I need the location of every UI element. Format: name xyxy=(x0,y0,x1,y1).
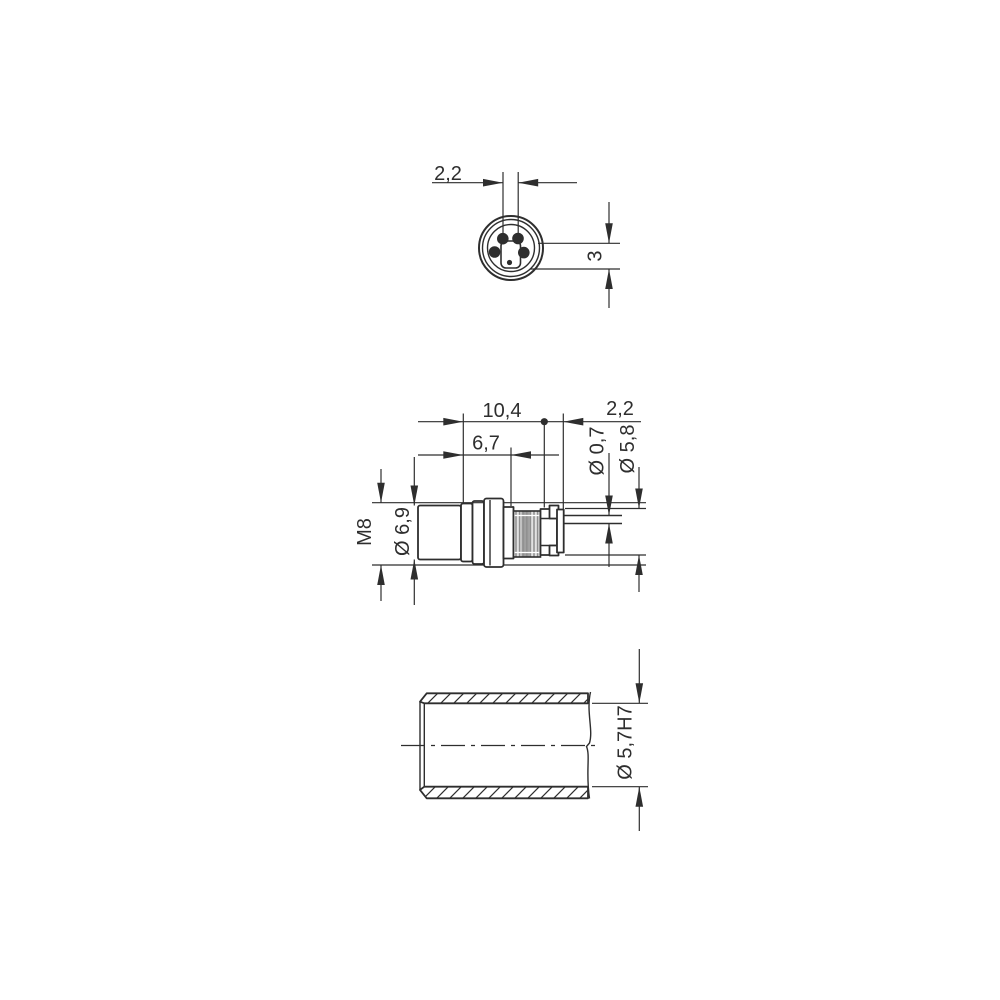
knurl-section xyxy=(514,511,541,557)
castellated-tip xyxy=(541,506,564,556)
contact-pin-1 xyxy=(497,233,509,245)
dim-key-offset: 3 xyxy=(530,202,620,308)
side-view: 10,4 2,2 6,7 M8 Ø 6,9 xyxy=(354,398,646,605)
arrow-down xyxy=(377,483,385,503)
dim-label-tip-diameter: Ø 5,8 xyxy=(617,425,639,474)
dim-thread-size: M8 xyxy=(354,469,385,601)
dim-label-key-offset: 3 xyxy=(585,250,607,261)
arrow-left xyxy=(511,451,531,459)
wall-hatch-bottom xyxy=(420,787,588,799)
dim-pin-spacing: 2,2 xyxy=(432,163,577,187)
drawing-canvas: 2,2 3 xyxy=(0,0,1000,1000)
dim-body-length: 6,7 xyxy=(418,433,559,459)
collar-ring-1 xyxy=(461,504,473,562)
dim-label-body-diameter: Ø 6,9 xyxy=(392,507,414,556)
arrow-up xyxy=(636,787,644,807)
arrow-right xyxy=(483,179,503,187)
dim-label-bore-diameter: Ø 5,7H7 xyxy=(615,705,637,779)
arrow-down xyxy=(636,683,644,703)
arrow-right xyxy=(443,418,463,426)
step-ring xyxy=(504,507,514,559)
tip-face xyxy=(557,510,564,553)
arrow-up xyxy=(411,560,419,580)
arrow-down xyxy=(605,496,613,516)
contact-pin-3 xyxy=(489,246,501,258)
arrow-down xyxy=(635,489,643,509)
dim-label-pin-spacing: 2,2 xyxy=(434,163,462,185)
arrow-up xyxy=(605,269,613,289)
dim-label-pin-diameter: Ø 0,7 xyxy=(587,427,609,476)
dim-body-diameter: Ø 6,9 xyxy=(392,457,418,605)
arrow-down xyxy=(605,223,613,243)
arrow-right xyxy=(443,451,463,459)
dim-label-tip-length: 2,2 xyxy=(606,398,634,420)
arrow-left xyxy=(563,418,583,426)
dim-bore-diameter: Ø 5,7H7 xyxy=(592,649,648,831)
section-view: Ø 5,7H7 xyxy=(401,649,648,831)
collar-ring-2 xyxy=(473,501,485,564)
chain-dot xyxy=(541,418,548,425)
arrow-up xyxy=(377,565,385,585)
dim-label-body-length: 6,7 xyxy=(472,433,500,455)
front-view: 2,2 3 xyxy=(432,163,620,308)
center-dot xyxy=(507,260,512,265)
contact-pin-4 xyxy=(518,247,530,259)
contact-pin-2 xyxy=(512,233,524,245)
dim-label-overall-length: 10,4 xyxy=(483,400,522,422)
connector-barrel xyxy=(418,506,461,560)
technical-drawing: 2,2 3 xyxy=(0,0,1000,1000)
dim-pin-diameter: Ø 0,7 xyxy=(587,427,613,567)
arrow-left xyxy=(518,179,538,187)
wall-hatch-top xyxy=(420,693,588,703)
dim-overall-length: 10,4 2,2 xyxy=(418,398,641,426)
dim-label-thread-size: M8 xyxy=(354,518,376,546)
hex-flange xyxy=(484,499,504,568)
break-line xyxy=(587,692,591,799)
arrow-up xyxy=(605,524,613,544)
